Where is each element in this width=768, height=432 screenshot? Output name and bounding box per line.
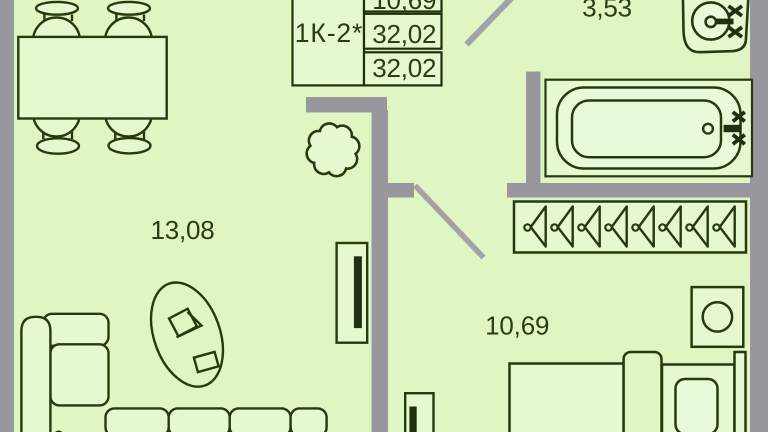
svg-text:1К-2*: 1К-2* (295, 18, 364, 48)
svg-text:32,02: 32,02 (372, 19, 436, 49)
svg-text:3,53: 3,53 (582, 0, 632, 23)
svg-text:32,02: 32,02 (372, 53, 436, 83)
svg-text:10,69: 10,69 (485, 311, 549, 341)
svg-text:13,08: 13,08 (150, 215, 214, 245)
svg-text:10,69: 10,69 (372, 0, 436, 15)
